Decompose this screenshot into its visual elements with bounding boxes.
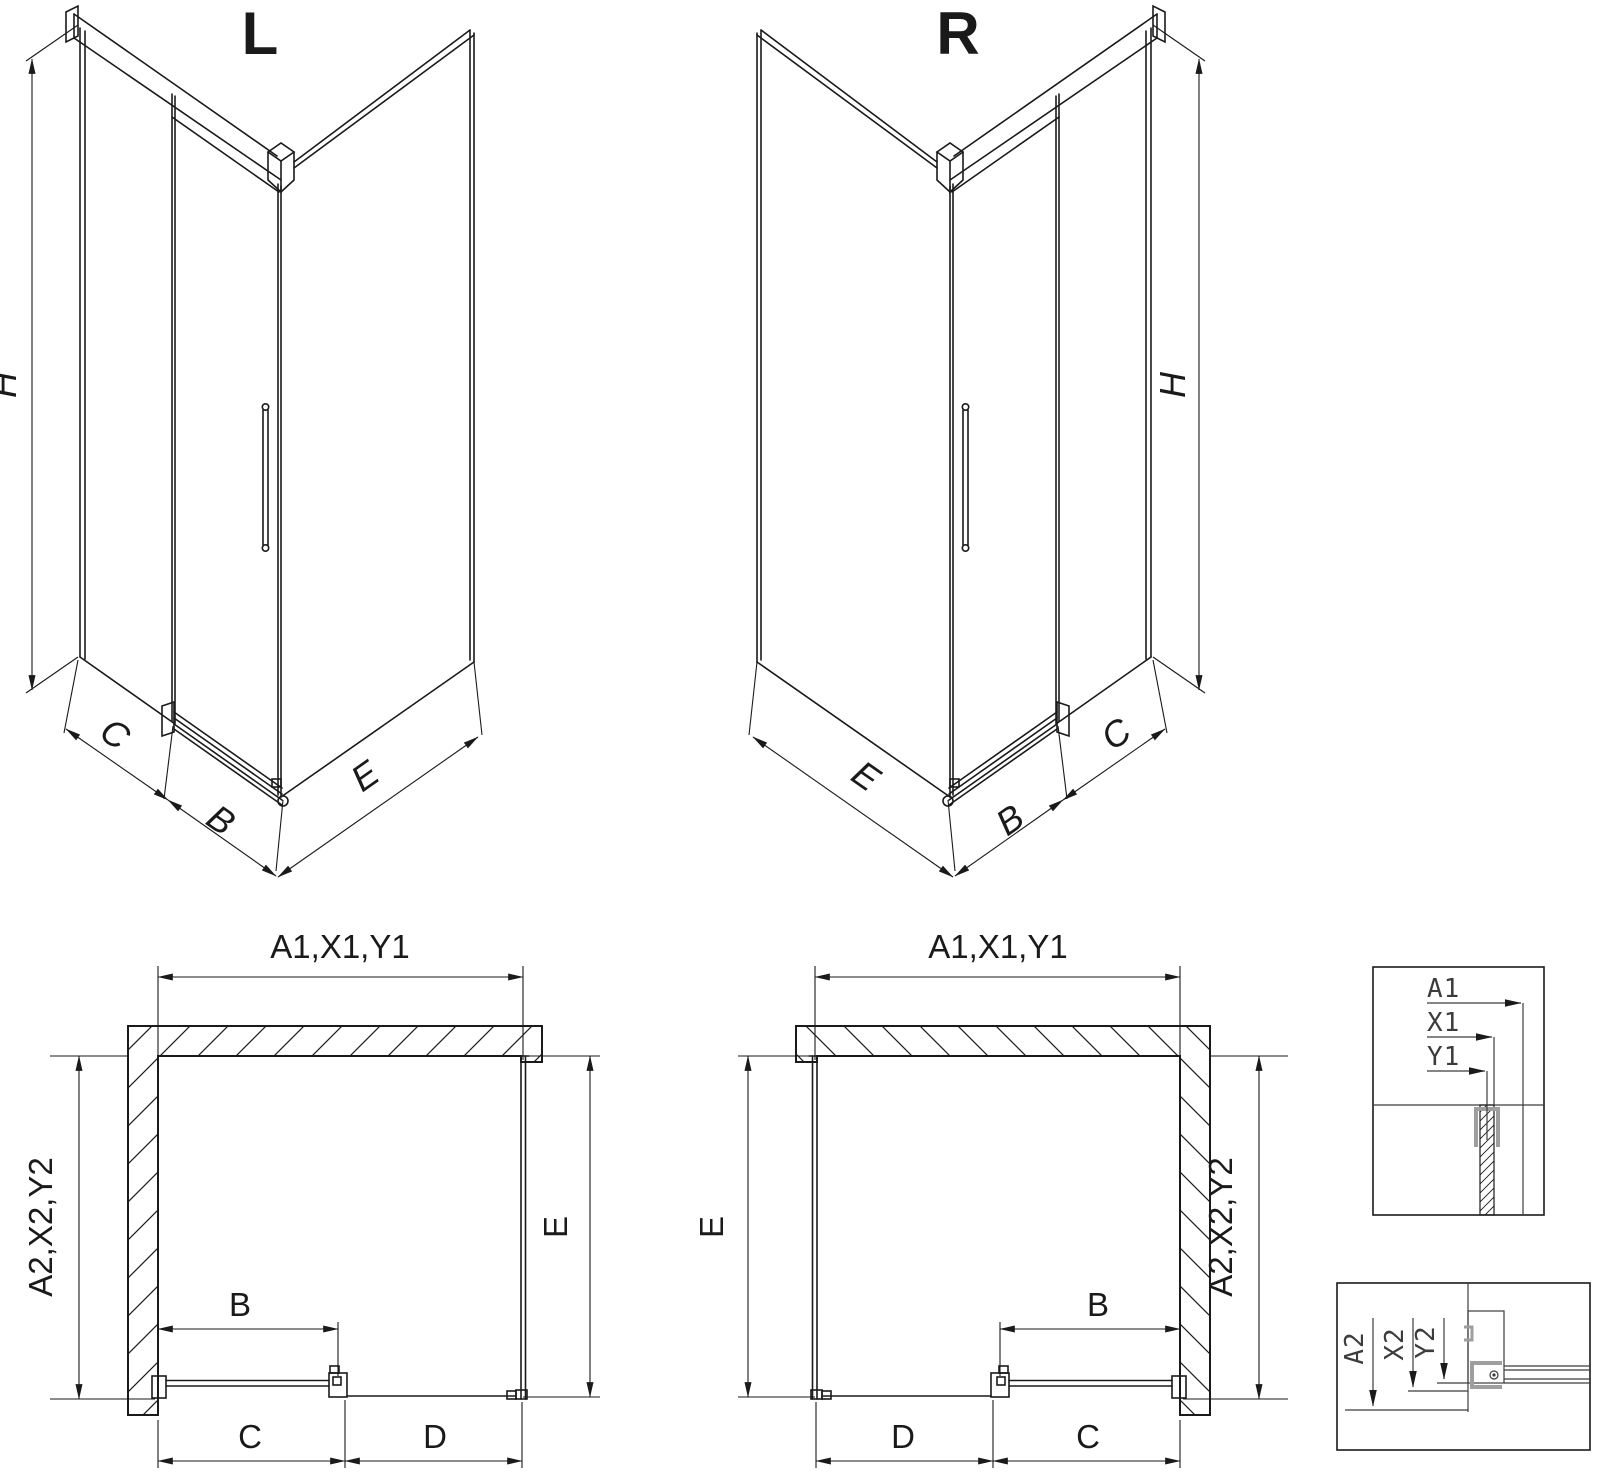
dim-label-h-iso-right: H [1152,371,1193,398]
detail-label-x2: X2 [1380,1327,1410,1360]
detail-label-a1: A1 [1427,974,1460,1004]
detail-section-top: A1 X1 Y1 [1373,967,1544,1215]
detail-label-a2: A2 [1340,1331,1370,1364]
dim-label-b-plan-right: B [1087,1286,1109,1323]
dim-label-a2-group-plan-right: A2,X2,Y2 [1202,1157,1239,1296]
dim-label-b-iso-right: B [988,796,1031,843]
dim-label-e-iso-right: E [845,752,889,800]
detail-label-y1: Y1 [1427,1042,1460,1072]
dim-label-e-plan-left: E [537,1216,574,1238]
drawing-sheet: L H C B E R H C B E A1,X1,Y1 A2,X2,Y2 E … [0,0,1600,1474]
dim-label-c-plan-right: C [1076,1418,1100,1455]
plan-view-left: A1,X1,Y1 A2,X2,Y2 E B C D [22,928,600,1468]
dim-label-e-iso-left: E [343,752,387,800]
dim-label-c-iso-right: C [1093,709,1139,758]
dim-label-d-plan-right: D [891,1418,915,1455]
dim-label-d-plan-left: D [423,1418,447,1455]
dim-label-e-plan-right: E [693,1216,730,1238]
detail-section-bottom: A2 X2 Y2 [1337,1283,1590,1450]
dim-label-h-iso-left: H [0,371,24,398]
iso-view-right: R H C B E [749,0,1205,877]
plan-view-right: A1,X1,Y1 A2,X2,Y2 E B D C [693,928,1288,1468]
variant-label-right: R [936,0,979,67]
detail-label-x1: X1 [1427,1008,1460,1038]
dim-label-c-plan-left: C [238,1418,262,1455]
iso-view-left: L H C B E [0,0,482,877]
variant-label-left: L [242,0,279,67]
dim-label-c-iso-left: C [93,710,139,759]
dim-label-a2-group-plan-left: A2,X2,Y2 [22,1157,59,1296]
dim-label-a1-group-plan-right: A1,X1,Y1 [928,928,1067,965]
dim-label-b-plan-left: B [229,1286,251,1323]
dim-label-b-iso-left: B [200,796,243,843]
technical-drawing: L H C B E R H C B E A1,X1,Y1 A2,X2,Y2 E … [0,0,1600,1474]
dim-label-a1-group-plan-left: A1,X1,Y1 [270,928,409,965]
detail-label-y2: Y2 [1411,1325,1441,1358]
